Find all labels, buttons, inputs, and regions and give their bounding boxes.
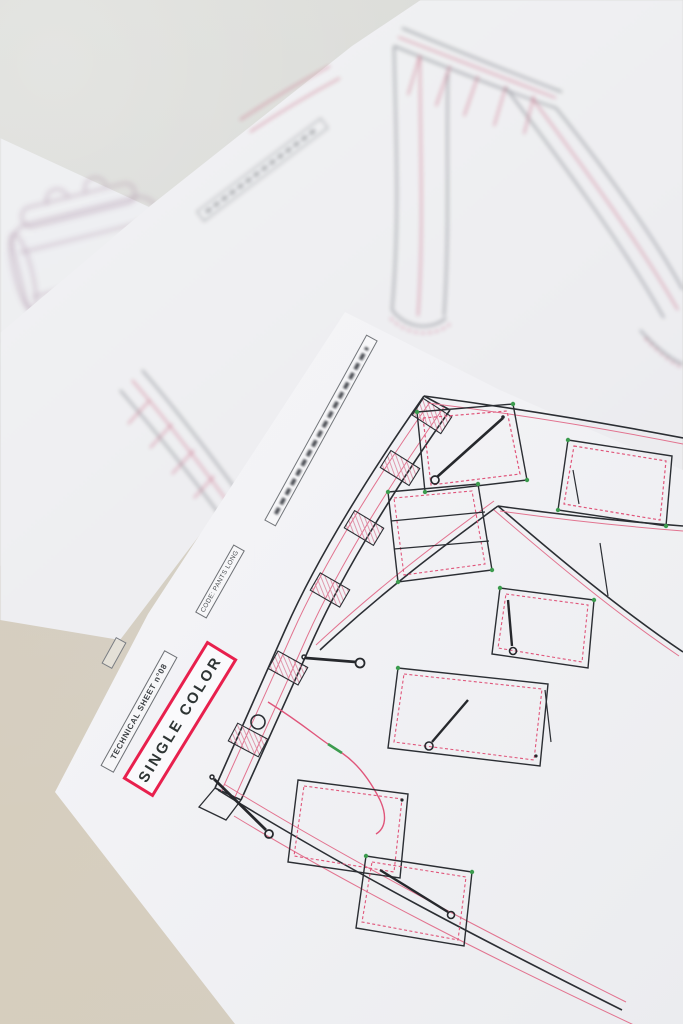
photo-scene: TECHNICAL SHEET n°08 SINGLE COLOR CODE: … [0, 0, 683, 1024]
